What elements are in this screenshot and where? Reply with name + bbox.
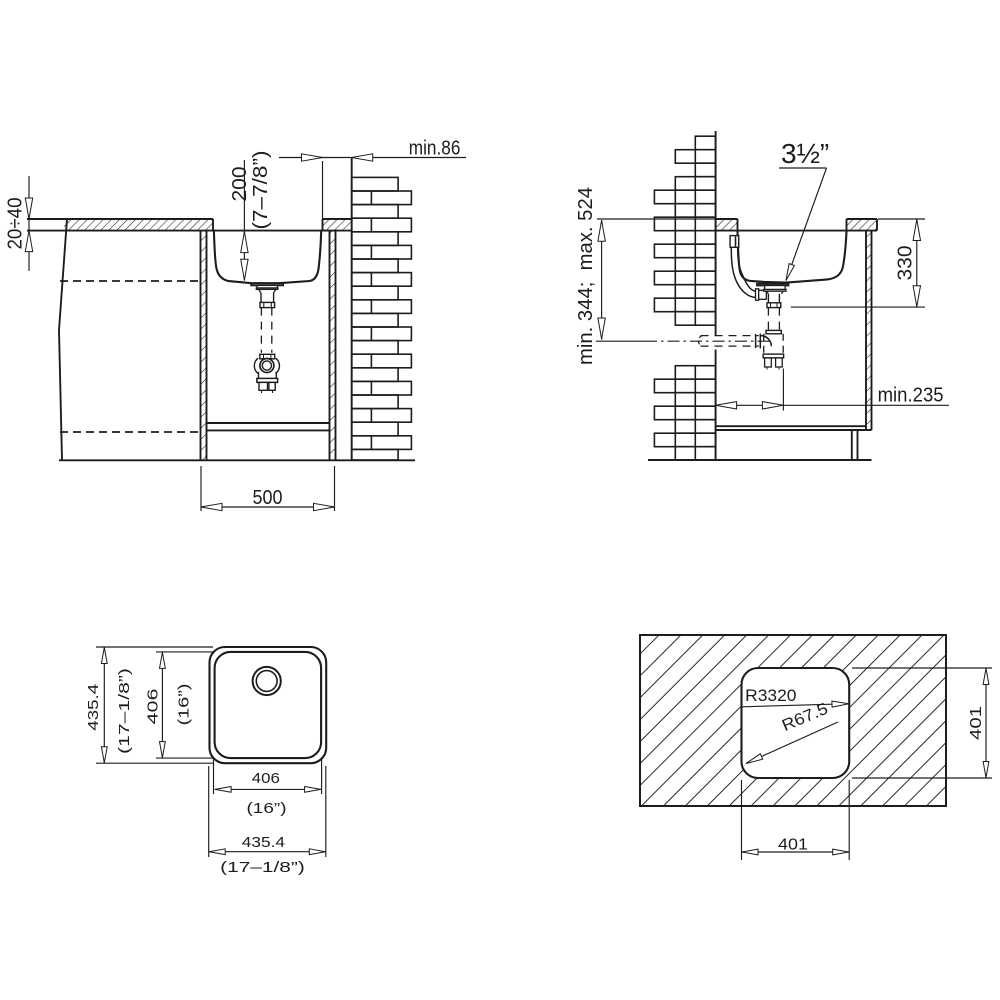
svg-text:435.4: 435.4 [86, 684, 102, 731]
svg-text:(16”): (16”) [176, 684, 192, 726]
svg-text:(16”): (16”) [247, 800, 287, 817]
svg-text:401: 401 [968, 706, 985, 740]
svg-text:(17–1/8”): (17–1/8”) [117, 668, 133, 754]
svg-text:R3320: R3320 [745, 686, 796, 705]
svg-text:401: 401 [778, 837, 808, 854]
svg-text:406: 406 [145, 689, 161, 725]
svg-text:330: 330 [895, 246, 917, 281]
svg-text:435.4: 435.4 [242, 834, 285, 851]
svg-text:min. 344; max. 524: min. 344; max. 524 [575, 187, 597, 365]
svg-text:3½”: 3½” [781, 138, 829, 169]
svg-text:min.86: min.86 [409, 137, 461, 159]
svg-text:200: 200 [229, 167, 251, 202]
svg-text:min.235: min.235 [878, 385, 944, 407]
svg-text:(7–7/8”): (7–7/8”) [250, 151, 272, 230]
svg-text:500: 500 [253, 487, 283, 509]
svg-text:20÷40: 20÷40 [5, 198, 27, 250]
svg-text:406: 406 [252, 770, 280, 787]
svg-text:(17–1/8”): (17–1/8”) [220, 859, 305, 876]
